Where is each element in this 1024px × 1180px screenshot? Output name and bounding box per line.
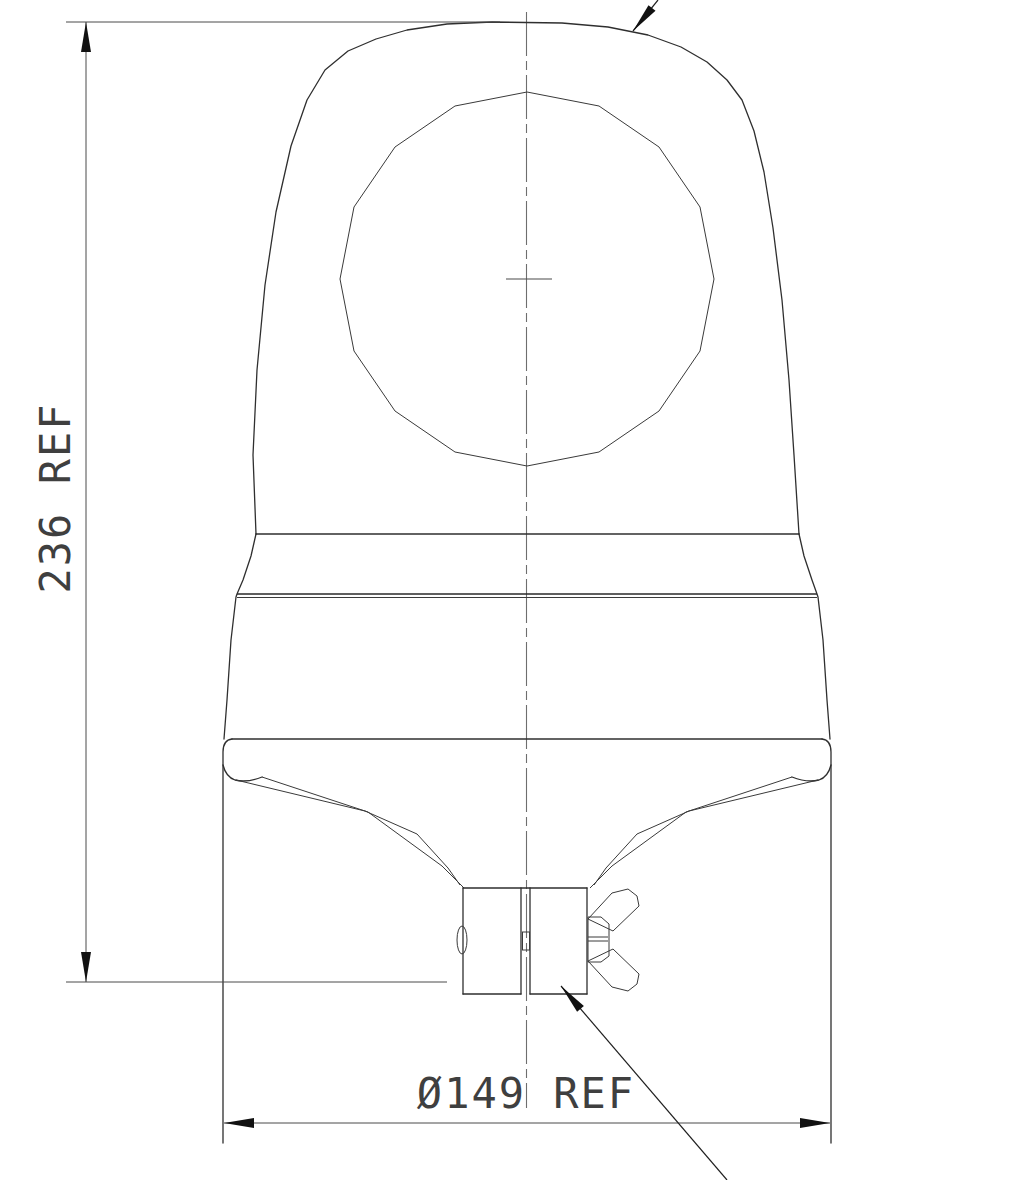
diameter-arrow-left [224, 1118, 254, 1128]
clamp-assembly [457, 888, 639, 994]
diameter-dimension: Ø149 REF [224, 1069, 830, 1128]
beacon-technical-drawing: 236 REF Ø149 REF [0, 0, 1024, 1180]
height-arrow-down [81, 952, 91, 982]
wing-nut-lower-wing [588, 949, 639, 991]
diameter-arrow-right [800, 1118, 830, 1128]
funnel-left-outer [236, 780, 460, 885]
dome-leader-arrowhead [633, 5, 656, 31]
height-dimension-label: 236 REF [31, 402, 80, 593]
height-dimension: 236 REF [31, 22, 500, 982]
drawing-sheet: 236 REF Ø149 REF [0, 0, 1024, 1180]
band-side-right [799, 534, 830, 739]
skirt-right-edge [822, 739, 831, 1143]
skirt-left-edge [223, 739, 232, 1143]
diameter-dimension-label: Ø149 REF [417, 1069, 635, 1118]
wing-nut-upper-wing [588, 889, 639, 931]
screw-head [457, 926, 467, 954]
skirt-ear-left [223, 765, 262, 781]
dome-leader [633, 0, 658, 31]
band-side-left [224, 534, 256, 739]
height-arrow-up [81, 22, 91, 52]
skirt-ear-right [792, 765, 831, 781]
clamp-leader-arrowhead [561, 986, 584, 1012]
wing-nut [588, 889, 639, 991]
funnel-right-outer [594, 780, 818, 885]
